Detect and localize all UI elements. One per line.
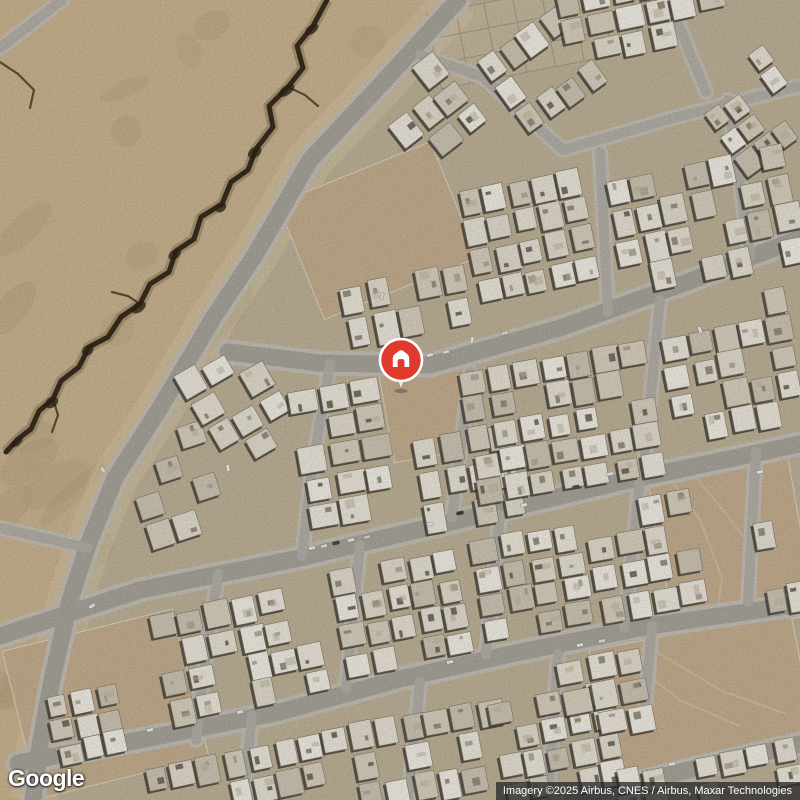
satellite-grain-texture bbox=[0, 0, 800, 800]
google-logo[interactable]: Google bbox=[8, 765, 84, 792]
map-viewport[interactable]: Google Imagery ©2025 Airbus, CNES / Airb… bbox=[0, 0, 800, 800]
map-attribution: Imagery ©2025 Airbus, CNES / Airbus, Max… bbox=[496, 782, 800, 800]
satellite-map[interactable] bbox=[0, 0, 800, 800]
